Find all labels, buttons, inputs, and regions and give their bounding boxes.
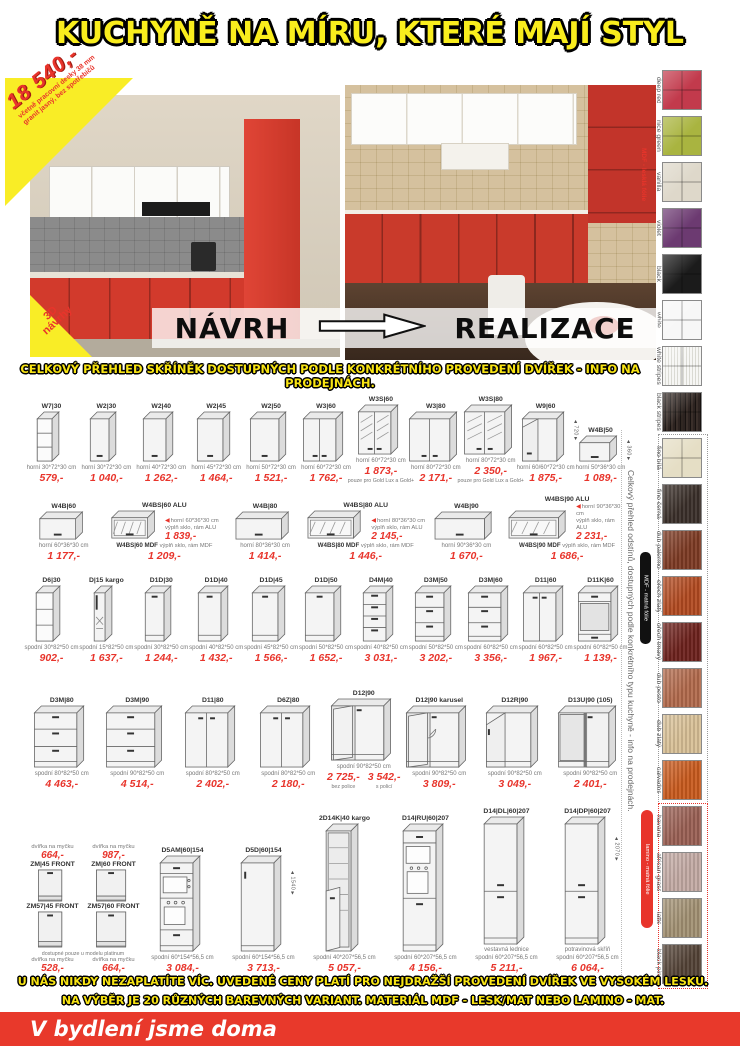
cabinet-price: 1 432,-: [200, 652, 233, 664]
cabinet-desc: horní 60*36*30 cm: [39, 543, 89, 549]
cabinet-model: W4B|50: [588, 427, 613, 434]
swatch-label: ořech zlatý: [650, 580, 662, 613]
cabinet-model: W4B|80: [253, 503, 278, 510]
cabinet-price: 1 637,-: [90, 652, 123, 664]
cabinet-desc: spodní 80*82*50 cm: [35, 771, 89, 777]
cabinet-item: D12|90 karuselspodní 90*82*50 cm3 809,-: [402, 697, 478, 790]
cabinet-item: D12R|90spodní 90*82*50 cm3 049,-: [477, 697, 553, 790]
swatch-fino-b-l-: [662, 438, 702, 478]
cabinet-price: 3 049,-: [498, 778, 531, 790]
cabinet-desc: spodní 40*207*56,5 cm: [313, 955, 375, 961]
cabinet-desc: horní 50*72*30 cm: [246, 465, 296, 471]
cabinet-desc: spodní 80*82*50 cm: [186, 771, 240, 777]
swatch-panes: [663, 761, 701, 799]
cabinet-item: W4B|60horní 60*36*30 cm1 177,-: [24, 503, 103, 562]
cabinet-desc: spodní 30*82*50 cm: [134, 645, 188, 651]
cabinet-figure: ▲720▼: [521, 411, 571, 463]
cabinet-desc: spodní 60*207*56,5 cm: [475, 955, 537, 961]
cabinet-dual-body: ◀horní 80*36*30 cmvýplň sklo, rám ALU2 1…: [306, 510, 425, 540]
front-item: dvířka na myčku987,-ZM|60 FRONT: [85, 844, 142, 903]
swatch-item: white stripes: [650, 346, 702, 386]
cabinet-item: D3M|80spodní 80*82*50 cm4 463,-: [24, 697, 100, 790]
cabinet-model: D14|DP|60|207: [564, 808, 611, 815]
cabinet-price: 1 177,-: [47, 550, 80, 562]
front-model: ZM57|45 FRONT: [26, 903, 78, 910]
cabinet-figure: [36, 411, 66, 463]
cabinet-price: 4 463,-: [45, 778, 78, 790]
swatch-item: calvados: [650, 760, 702, 800]
swatch-black: [662, 254, 702, 294]
cabinet-desc: ◀horní 60*36*30 cm: [165, 518, 219, 525]
cabinet-figure: [577, 585, 625, 643]
swatch-item: dub zlatý: [650, 714, 702, 754]
swatch-label: dub pesto: [650, 673, 662, 703]
cabinet-model: D12|90: [353, 690, 375, 697]
cabinet-desc: spodní 45*82*50 cm: [244, 645, 298, 651]
swatch-deep-red: [662, 70, 702, 110]
cabinet-figure: [507, 510, 573, 540]
swatch-violet: [662, 208, 702, 248]
cabinet-item: D3M|50spodní 50*82*50 cm3 202,-: [408, 577, 463, 664]
lamino-badge: lamino - matná fólie: [641, 810, 653, 928]
swatch-label: dub zlatý: [650, 720, 662, 747]
swatch-vanilla: [662, 162, 702, 202]
price-pair: 2 725,-bez police3 542,-s policí: [327, 770, 400, 790]
cabinet-model: D1D|50: [314, 577, 337, 584]
cabinet-model: W3|80: [426, 403, 446, 410]
cabinet-figure: [405, 705, 473, 769]
glass-frame-note: výplň sklo, rám ALU: [576, 518, 627, 532]
cabinet-desc: spodní 60*154*56,5 cm: [151, 955, 213, 961]
cabinet-figure: ▲2070▼: [564, 816, 612, 946]
swatch-havana: [662, 806, 702, 846]
swatch-dub-palermo: [662, 530, 702, 570]
fronts-mid-grid: ZM57|45 FRONTZM57|60 FRONT: [24, 903, 142, 949]
price-note-2: s policí: [376, 784, 393, 790]
disclaimer-line1: U NÁS NIKDY NEZAPLATÍTE VÍC. UVEDENÉ CEN…: [18, 975, 708, 988]
cabinet-figure: [325, 823, 365, 953]
cabinet-desc: spodní 60*207*56,5 cm: [556, 955, 618, 961]
swatch-o-ech-zlat-: [662, 576, 702, 616]
cabinet-desc: horní 40*72*30 cm: [136, 465, 186, 471]
cabinet-desc: horní 60*72*30 cm: [356, 458, 406, 464]
cabinet-figure: [414, 585, 458, 643]
cabinet-item: D14|DL|60|207vestavná lednicespodní 60*2…: [466, 808, 547, 974]
cabinet-figure: [302, 411, 350, 463]
swatch-item: african grass: [650, 852, 702, 892]
cabinet-item: D1D|30spodní 30*82*50 cm1 244,-: [134, 577, 189, 664]
cabinet-model: D14|DL|60|207: [483, 808, 529, 815]
cabinet-model: W3S|80: [479, 396, 503, 403]
cabinet-model: W2|50: [261, 403, 281, 410]
price-disclaimer: U NÁS NIKDY NEZAPLATÍTE VÍC. UVEDENÉ CEN…: [0, 972, 726, 1010]
swatch-item: fino černá: [650, 484, 702, 524]
swatch-item: black stripes: [650, 392, 702, 432]
cabinet-desc: spodní 90*82*50 cm: [488, 771, 542, 777]
cabinet-price: 579,-: [39, 472, 63, 484]
swatch-label: ořech tmavý: [650, 623, 662, 660]
cabinet-item: D5D|60|154▲1540▼spodní 60*154*56,5 cm3 7…: [223, 847, 304, 974]
cabinet-model: D1D|30: [150, 577, 173, 584]
cabinet-item: D13U|90 (105)spodní 90*82*50 cm2 401,-: [553, 697, 629, 790]
navrh-label: NÁVRH: [152, 312, 312, 345]
cabinet-price: 1 089,-: [584, 472, 617, 484]
cabinet-price: 2 401,-: [574, 778, 607, 790]
cabinet-grid: W7|30horní 30*72*30 cm579,-W2|30horní 30…: [24, 384, 628, 974]
cabinet-model: W3S|60: [369, 396, 393, 403]
cabinet-figure: [159, 855, 207, 953]
cabinet-item: W3S|60horní 60*72*30 cm1 873,-pouze pro …: [353, 396, 408, 484]
dotted-separator: [621, 430, 622, 985]
brand-tagline: V bydlení jsme doma: [30, 1017, 277, 1041]
cabinet-desc: horní 80*36*30 cm: [240, 543, 290, 549]
cabinet-model: D6|30: [42, 577, 60, 584]
cabinet-price: 1 670,-: [450, 550, 483, 562]
cabinet-model: D12|90 karusel: [415, 697, 463, 704]
cabinet-figure: [306, 510, 368, 540]
render-tall-cabinet: [244, 119, 300, 339]
cabinet-model: D3M|60: [479, 577, 503, 584]
arrow-right-icon: [312, 311, 432, 346]
cabinet-type-note: vestavná lednice: [484, 947, 529, 953]
cabinet-model-mdf: W4BS|80 MDF výplň sklo, rám MDF: [318, 542, 414, 549]
swatch-panes: [663, 209, 701, 247]
cabinet-item: D|15 kargospodní 15*82*50 cm1 637,-: [79, 577, 134, 664]
cabinet-figure: [402, 823, 450, 953]
swatch-item: ořech zlatý: [650, 576, 702, 616]
cabinet-item: D11|80spodní 80*82*50 cm2 402,-: [175, 697, 251, 790]
cabinet-model: W7|30: [42, 403, 62, 410]
cabinet-figure: [408, 411, 464, 463]
cabinet-price: 2 145,-: [371, 533, 425, 540]
cabinet-desc: spodní 60*82*50 cm: [574, 645, 628, 651]
cabinet-model: W3|60: [316, 403, 336, 410]
front-figure: [37, 911, 69, 949]
pointer-icon: ◀: [576, 504, 581, 510]
cabinet-desc: spodní 90*82*50 cm: [412, 771, 466, 777]
cabinet-desc: horní 30*72*30 cm: [27, 465, 77, 471]
cabinet-model: 2D14K|40 kargo: [319, 815, 370, 822]
cabinet-item: W9|60▲720▼horní 60/60*72*30 cm1 875,-: [518, 403, 573, 484]
cabinet-item: W2|50horní 50*72*30 cm1 521,-: [244, 403, 299, 484]
pointer-icon: ◀: [371, 518, 376, 524]
cabinet-dual-body: ◀horní 90*36*30 cmvýplň sklo, rám ALU2 2…: [507, 504, 627, 540]
front-figure: [95, 911, 133, 949]
swatch-label: deep red: [650, 77, 662, 104]
disclaimer-line2: NA VÝBĚR JE 20 RŮZNÝCH BAREVNÝCH VARIANT…: [62, 994, 664, 1007]
swatch-label: fino bílá: [650, 446, 662, 470]
cabinet-figure: [483, 816, 531, 946]
cabinet-desc: spodní 30*82*50 cm: [24, 645, 78, 651]
cabinet-item: W4BS|90 ALU◀horní 90*36*30 cmvýplň sklo,…: [506, 496, 628, 562]
pointer-icon: ◀: [165, 518, 170, 524]
cabinet-desc: spodní 60*82*50 cm: [464, 645, 518, 651]
cabinet-figure: [557, 705, 623, 769]
swatch-item: ořech tmavý: [650, 622, 702, 662]
cabinet-figure: [433, 511, 499, 541]
cabinet-type-note: potravinová skříň: [565, 947, 611, 953]
cabinet-figure: [357, 404, 405, 456]
swatch-item: latte: [650, 898, 702, 938]
cabinet-figure: [89, 411, 123, 463]
swatch-fino-ern-: [662, 484, 702, 524]
cabinet-row: D6|30spodní 30*82*50 cm902,-D|15 kargosp…: [24, 562, 628, 664]
cabinet-note: pouze pro Gold Lux a Gold+: [458, 478, 524, 484]
cabinet-figure: [259, 705, 317, 769]
cabinet-desc: spodní 90*82*50 cm: [110, 771, 164, 777]
cabinet-side-info: ◀horní 80*36*30 cmvýplň sklo, rám ALU2 1…: [371, 518, 425, 540]
front-price: 987,-: [102, 850, 125, 861]
swatch-panes: [663, 577, 701, 615]
cabinet-row: W7|30horní 30*72*30 cm579,-W2|30horní 30…: [24, 384, 628, 484]
cabinet-model-mdf-code: W4BS|60 MDF: [116, 542, 158, 549]
cabinet-model: D6Z|80: [277, 697, 299, 704]
cabinet-figure: [362, 585, 400, 643]
cabinet-desc: horní 60/60*72*30 cm: [517, 465, 575, 471]
swatch-panes: [663, 255, 701, 293]
cabinet-price: 2 180,-: [272, 778, 305, 790]
cabinet-price: 1 873,-: [365, 465, 398, 477]
swatch-nice-green: [662, 116, 702, 156]
front-model: ZM|45 FRONT: [30, 861, 75, 868]
mdf-mat-badge: MDF - matná fólie: [640, 552, 651, 644]
swatch-label: violet: [650, 220, 662, 236]
swatch-panes: [663, 715, 701, 753]
cabinet-price-2: 3 542,-: [368, 771, 401, 783]
cabinet-desc: horní 45*72*30 cm: [191, 465, 241, 471]
cabinet-price: 1 414,-: [249, 550, 282, 562]
swatch-item: nice green: [650, 116, 702, 156]
swatch-dub-pesto: [662, 668, 702, 708]
cabinet-figure: [38, 511, 90, 541]
swatch-label: calvados: [650, 767, 662, 794]
cabinet-desc: spodní 60*154*56,5 cm: [232, 955, 294, 961]
cabinet-note: pouze pro Gold Lux a Gold+: [348, 478, 414, 484]
cabinet-model: W4B|60: [51, 503, 76, 510]
swatch-calvados: [662, 760, 702, 800]
swatch-panes: [663, 485, 701, 523]
swatch-panes: [663, 899, 701, 937]
cabinet-model-mdf-code: W4BS|90 MDF: [519, 542, 561, 549]
cabinet-desc: spodní 60*207*56,5 cm: [394, 955, 456, 961]
cabinet-desc: spodní 90*82*50 cm: [563, 771, 617, 777]
cabinet-model: D11|60: [535, 577, 557, 584]
cabinet-figure: [304, 585, 348, 643]
cabinet-figure: [35, 585, 67, 643]
photo-upper-cabinets: [351, 93, 577, 145]
cabinet-figure: [522, 585, 570, 643]
cabinet-desc: spodní 50*82*50 cm: [409, 645, 463, 651]
cabinet-model: W2|40: [151, 403, 171, 410]
price-option: 2 725,-bez police: [327, 770, 360, 790]
cabinet-model: W2|45: [206, 403, 226, 410]
cabinet-figure: [467, 585, 515, 643]
cabinet-figure: [463, 404, 519, 456]
swatch-panes: [663, 531, 701, 569]
cabinet-price: 1 464,-: [200, 472, 233, 484]
cabinet-price: 1 652,-: [310, 652, 343, 664]
cabinet-price: 3 356,-: [474, 652, 507, 664]
cabinet-item: W2|45horní 45*72*30 cm1 464,-: [189, 403, 244, 484]
footer-bar: V bydlení jsme doma: [0, 1012, 740, 1046]
swatch-label: nice green: [650, 120, 662, 152]
swatch-panes: [663, 301, 701, 339]
cabinet-item: D14|DP|60|207▲2070▼potravinová skříňspod…: [547, 808, 628, 974]
photo-hood: [441, 143, 508, 170]
cabinet-item: W3S|80horní 80*72*30 cm2 350,-pouze pro …: [463, 396, 518, 484]
swatch-panes: [663, 117, 701, 155]
front-figure: [95, 869, 133, 903]
mdf-gloss-label: MDF - lesklá fólie: [640, 148, 647, 201]
cabinet-side-info: ◀horní 60*36*30 cmvýplň sklo, rám ALU1 8…: [165, 518, 219, 540]
cabinet-item: 2D14K|40 kargospodní 40*207*56,5 cm5 057…: [304, 815, 385, 974]
cabinet-model: W2|30: [97, 403, 117, 410]
cabinet-item: D11|60spodní 60*82*50 cm1 967,-: [518, 577, 573, 664]
cabinet-model: D1D|45: [260, 577, 283, 584]
swatch-panes: [663, 71, 701, 109]
cabinet-desc: horní 60*72*30 cm: [301, 465, 351, 471]
cabinet-model: D3M|80: [50, 697, 74, 704]
cabinet-model: W4BS|80 ALU: [343, 502, 388, 509]
swatch-label: black stripes: [650, 393, 662, 431]
cabinet-model-mdf: W4BS|60 MDF výplň sklo, rám MDF: [116, 542, 212, 549]
cabinet-model: D|15 kargo: [89, 577, 124, 584]
cabinet-price: 1 839,-: [165, 533, 219, 540]
cabinet-figure: [249, 411, 293, 463]
swatch-item: dub palermo: [650, 530, 702, 570]
swatch-panes: [663, 669, 701, 707]
cabinet-price: 3 809,-: [423, 778, 456, 790]
cabinet-price: 1 040,-: [90, 472, 123, 484]
cabinet-item: D3M|90spodní 90*82*50 cm4 514,-: [100, 697, 176, 790]
swatch-panes: [663, 439, 701, 477]
swatch-white: [662, 300, 702, 340]
swatch-label: dub palermo: [650, 531, 662, 569]
cabinet-model: D11K|60: [587, 577, 613, 584]
price-option: 3 542,-s policí: [368, 770, 401, 790]
cabinet-desc: ◀horní 90*36*30 cm: [576, 504, 627, 518]
cabinet-price: 3 202,-: [419, 652, 452, 664]
cabinet-item: D1D|45spodní 45*82*50 cm1 566,-: [244, 577, 299, 664]
dimension-label: ▲2070▼: [614, 836, 620, 863]
cabinet-desc: horní 90*36*30 cm: [442, 543, 492, 549]
cabinet-side-info: ◀horní 90*36*30 cmvýplň sklo, rám ALU2 2…: [576, 504, 627, 540]
cabinet-price-mdf: 1 686,-: [551, 550, 584, 562]
cabinet-figure: [197, 585, 235, 643]
cabinet-price: 2 231,-: [576, 533, 627, 540]
cabinet-model: D12R|90: [501, 697, 528, 704]
cabinet-price: 1 262,-: [145, 472, 178, 484]
swatch-item: fino bílá: [650, 438, 702, 478]
cabinet-item: W4B|50▲360▼horní 50*36*30 cm1 089,-: [573, 427, 628, 484]
cabinet-dual-body: ◀horní 60*36*30 cmvýplň sklo, rám ALU1 8…: [110, 510, 219, 540]
lamino-label: lamino - matná fólie: [644, 844, 650, 895]
cabinet-desc: horní 80*72*30 cm: [411, 465, 461, 471]
cabinet-model: D5AM|60|154: [162, 847, 204, 854]
swatch-label: fino černá: [650, 489, 662, 519]
render-coffee-machine: [191, 242, 216, 271]
cabinet-model: W4BS|60 ALU: [142, 502, 187, 509]
swatch-panes: [663, 163, 701, 201]
swatch-panes: [663, 393, 701, 431]
cabinet-figure: [184, 705, 242, 769]
swatch-panes: [663, 807, 701, 845]
cabinet-item: W4B|90horní 90*36*30 cm1 670,-: [427, 503, 506, 562]
cabinet-figure: ▲360▼: [578, 435, 624, 463]
front-model: ZM|60 FRONT: [91, 861, 136, 868]
cabinet-item: W4B|80horní 80*36*30 cm1 414,-: [225, 503, 304, 562]
cabinet-price: 2 402,-: [196, 778, 229, 790]
cabinet-figure: [93, 585, 119, 643]
cabinet-row: W4B|60horní 60*36*30 cm1 177,-W4BS|60 AL…: [24, 484, 628, 562]
cabinet-item: D3M|60spodní 60*82*50 cm3 356,-: [463, 577, 518, 664]
cabinet-model: W4B|90: [454, 503, 479, 510]
swatch-o-ech-tmav-: [662, 622, 702, 662]
swatch-label: black: [650, 266, 662, 282]
cabinet-desc: spodní 15*82*50 cm: [79, 645, 133, 651]
swatch-item: deep red: [650, 70, 702, 110]
cabinet-figure: [33, 705, 91, 769]
cabinet-item: W4BS|60 ALU◀horní 60*36*30 cmvýplň sklo,…: [103, 502, 225, 562]
cabinet-item: D6Z|80spodní 80*82*50 cm2 180,-: [251, 697, 327, 790]
swatch-item: dub pesto: [650, 668, 702, 708]
swatch-panes: [663, 623, 701, 661]
cabinet-model-mdf-code: W4BS|80 MDF: [318, 542, 360, 549]
cabinet-item: D14|RU|60|207spodní 60*207*56,5 cm4 156,…: [385, 815, 466, 974]
cabinet-item: D11K|60spodní 60*82*50 cm1 139,-: [573, 577, 628, 664]
cabinet-figure: [110, 510, 162, 540]
cabinet-figure: [196, 411, 237, 463]
cabinet-model: D11|80: [202, 697, 224, 704]
cabinet-desc: spodní 60*82*50 cm: [519, 645, 573, 651]
swatch-item: black: [650, 254, 702, 294]
dimension-label: ▲1540▼: [290, 870, 296, 897]
cabinet-price-mdf: 1 446,-: [349, 550, 382, 562]
cabinet-item: D1D|40spodní 40*82*50 cm1 432,-: [189, 577, 244, 664]
cabinet-desc: horní 80*72*30 cm: [466, 458, 516, 464]
process-bar: NÁVRH REALIZACE: [152, 308, 658, 348]
cabinet-price: 1 244,-: [145, 652, 178, 664]
cabinet-price: 1 875,-: [529, 472, 562, 484]
swatch-item: violet: [650, 208, 702, 248]
cabinet-item: D4M|40spodní 40*82*50 cm3 031,-: [353, 577, 408, 664]
front-figure: [37, 869, 69, 903]
cabinet-price: 2 171,-: [419, 472, 452, 484]
fronts-top-grid: dvířka na myčku664,-ZM|45 FRONTdvířka na…: [24, 844, 142, 903]
cabinet-desc: horní 30*72*30 cm: [82, 465, 132, 471]
cabinet-model: D3M|50: [424, 577, 448, 584]
cabinet-item: W3|60horní 60*72*30 cm1 762,-: [299, 403, 354, 484]
cabinet-model: D3M|90: [125, 697, 149, 704]
cabinet-desc: horní 50*36*30 cm: [576, 465, 626, 471]
swatch-panes: [663, 853, 701, 891]
cabinet-item: W4BS|80 ALU◀horní 80*36*30 cmvýplň sklo,…: [305, 502, 427, 562]
cabinet-item: W3|80horní 80*72*30 cm2 171,-: [408, 403, 463, 484]
realizace-label: REALIZACE: [432, 312, 658, 345]
cabinet-price: 1 521,-: [255, 472, 288, 484]
cabinet-figure: [105, 705, 169, 769]
cabinet-item: W7|30horní 30*72*30 cm579,-: [24, 403, 79, 484]
swatch-item: vanilla: [650, 162, 702, 202]
front-model: ZM57|60 FRONT: [87, 903, 139, 910]
swatch-panes: [663, 347, 701, 385]
cabinet-desc: spodní 80*82*50 cm: [261, 771, 315, 777]
cabinet-model: D5D|60|154: [245, 847, 281, 854]
front-price: 664,-: [41, 850, 64, 861]
swatch-item: havana: [650, 806, 702, 846]
cabinet-price: 1 967,-: [529, 652, 562, 664]
front-item: ZM57|60 FRONT: [85, 903, 142, 949]
